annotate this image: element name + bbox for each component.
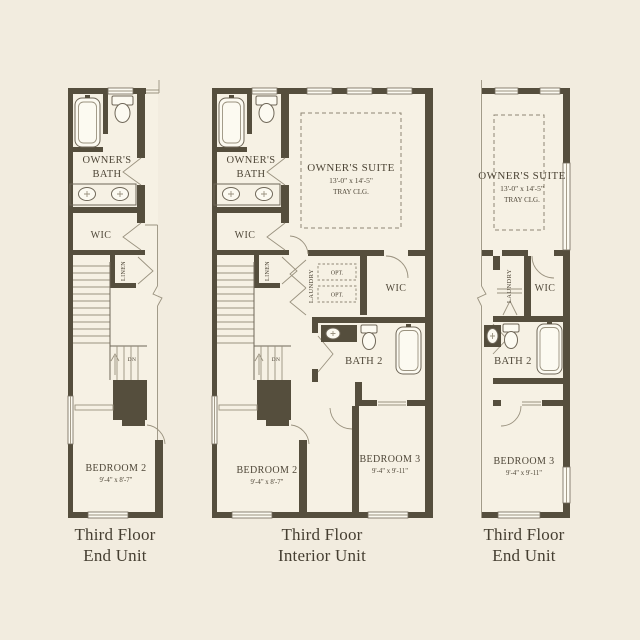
label-linen: LINEN xyxy=(265,261,271,281)
label-wic: WIC xyxy=(235,230,256,241)
label-laundry: LAUNDRY xyxy=(506,269,513,303)
label-owners-suite-dims: 13'-0" x 14'-5" xyxy=(500,184,544,193)
caption-middle-line2: Interior Unit xyxy=(278,546,366,565)
bath2-vanity-sink xyxy=(484,325,501,347)
caption-left-line1: Third Floor xyxy=(74,525,155,544)
label-opt-top: OPT. xyxy=(331,271,344,277)
label-bedroom3: BEDROOM 3 xyxy=(493,456,554,467)
label-owners-bath-2: BATH xyxy=(92,169,121,180)
plan-right-end-unit: OWNER'S SUITE 13'-0" x 14'-5" TRAY CLG. … xyxy=(478,80,571,518)
bathtub xyxy=(396,324,421,374)
label-wic2: WIC xyxy=(386,283,407,294)
label-owners-bath-2: BATH xyxy=(236,169,265,180)
label-laundry: LAUNDRY xyxy=(308,269,315,303)
label-owners-suite: OWNER'S SUITE xyxy=(478,170,566,182)
label-owners-bath: OWNER'S xyxy=(82,155,131,166)
label-bedroom2: BEDROOM 2 xyxy=(85,463,146,474)
label-dn: DN xyxy=(128,357,137,363)
label-opt-bottom: OPT. xyxy=(331,293,344,299)
label-bath2: BATH 2 xyxy=(345,356,383,367)
label-owners-suite-dims: 13'-0" x 14'-5" xyxy=(329,176,373,185)
plan-interior-unit: OWNER'S BATH WIC LINEN DN OWNER'S SUITE … xyxy=(212,88,433,518)
label-owners-suite-clg: TRAY CLG. xyxy=(504,196,540,204)
label-linen: LINEN xyxy=(121,261,127,281)
label-owners-suite: OWNER'S SUITE xyxy=(307,162,395,174)
label-wic: WIC xyxy=(91,230,112,241)
bath2-vanity-sink xyxy=(321,325,357,342)
label-bedroom3-dims: 9'-4" x 9'-11" xyxy=(506,470,542,477)
caption-middle-line1: Third Floor xyxy=(281,525,362,544)
label-bedroom3: BEDROOM 3 xyxy=(359,454,420,465)
caption-right-line2: End Unit xyxy=(492,546,556,565)
toilet xyxy=(361,325,377,350)
bathtub xyxy=(537,321,562,374)
label-dn: DN xyxy=(272,357,281,363)
label-bedroom3-dims: 9'-4" x 9'-11" xyxy=(372,468,408,475)
label-owners-bath: OWNER'S xyxy=(226,155,275,166)
label-owners-suite-clg: TRAY CLG. xyxy=(333,188,369,196)
label-bedroom2: BEDROOM 2 xyxy=(236,465,297,476)
label-bedroom2-dims: 9'-4" x 8'-7" xyxy=(100,477,133,484)
label-wic: WIC xyxy=(535,283,556,294)
label-bath2: BATH 2 xyxy=(494,356,532,367)
floorplan-canvas: OWNER'S BATH WIC LINEN DN BEDROOM 2 9'-4… xyxy=(0,0,640,640)
label-bedroom2-dims: 9'-4" x 8'-7" xyxy=(251,479,284,486)
caption-left-line2: End Unit xyxy=(83,546,147,565)
floorplan-sheet: OWNER'S BATH WIC LINEN DN BEDROOM 2 9'-4… xyxy=(0,0,640,640)
plan-left-end-unit: OWNER'S BATH WIC LINEN DN BEDROOM 2 9'-4… xyxy=(68,80,165,518)
toilet xyxy=(503,324,519,349)
caption-right-line1: Third Floor xyxy=(483,525,564,544)
